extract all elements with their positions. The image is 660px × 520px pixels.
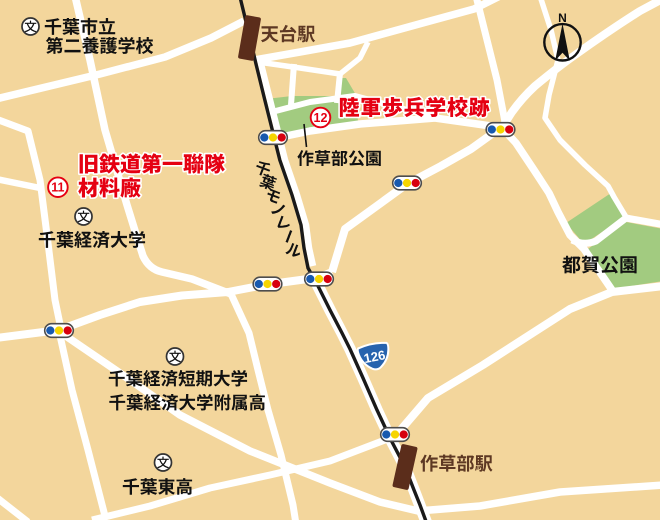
svg-text:11: 11 (51, 181, 64, 195)
svg-text:12: 12 (314, 111, 328, 125)
svg-text:N: N (558, 11, 567, 25)
